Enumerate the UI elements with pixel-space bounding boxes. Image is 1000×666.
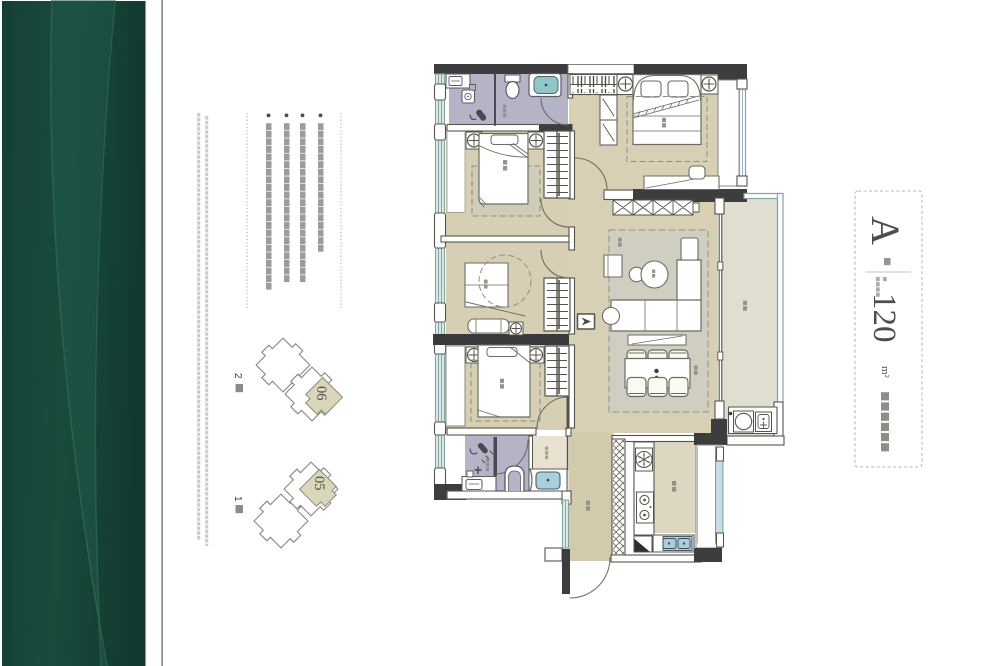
svg-text:120: 120 xyxy=(866,293,902,343)
svg-text:06: 06 xyxy=(313,386,329,401)
svg-text:A: A xyxy=(863,216,908,245)
svg-text:05: 05 xyxy=(311,476,327,491)
svg-text:m²: m² xyxy=(879,366,891,379)
svg-text:2: 2 xyxy=(232,373,243,379)
svg-text:1: 1 xyxy=(232,496,243,502)
